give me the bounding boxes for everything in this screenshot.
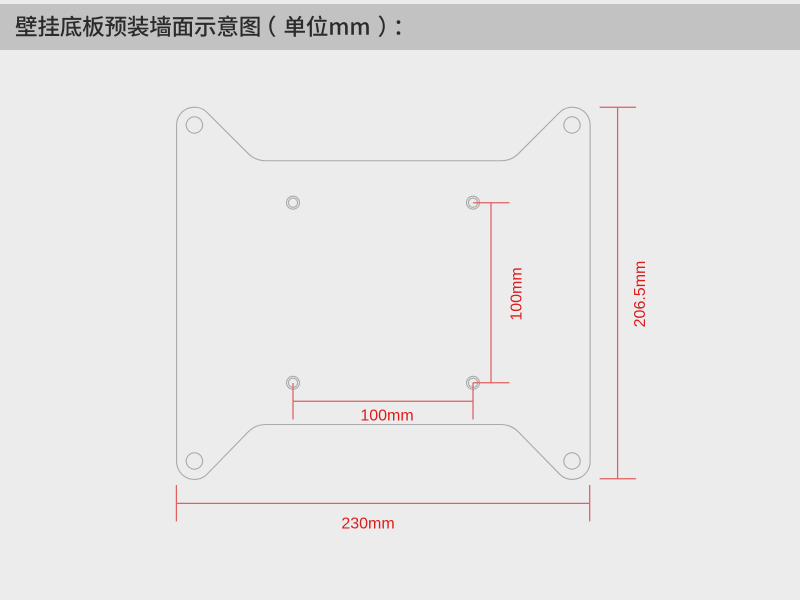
svg-text:230mm: 230mm — [341, 516, 394, 533]
svg-text:100mm: 100mm — [360, 407, 413, 424]
svg-text:100mm: 100mm — [508, 267, 525, 320]
svg-text:206.5mm: 206.5mm — [632, 261, 649, 328]
